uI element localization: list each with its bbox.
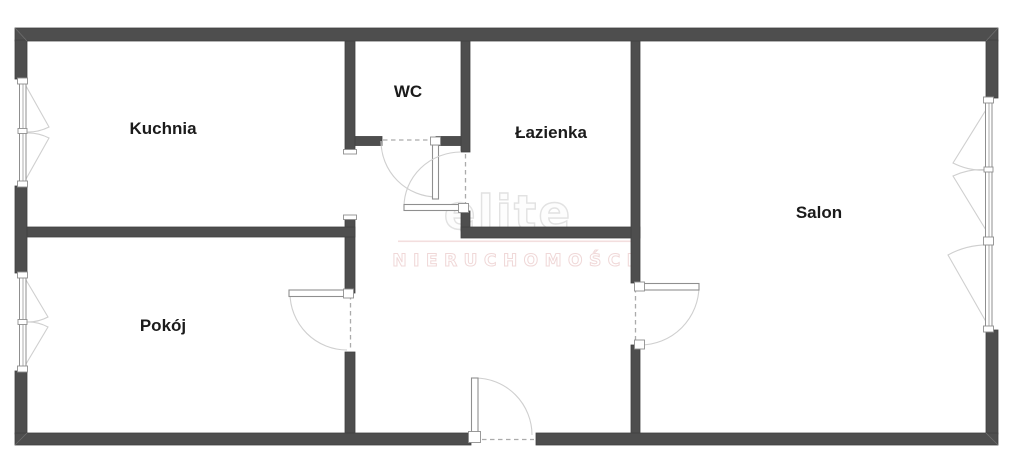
door-wc-leaf xyxy=(433,145,439,199)
kitchen-doorway-jamb-bottom xyxy=(344,215,357,220)
window-salon xyxy=(948,97,994,332)
door-entrance-swing-arc xyxy=(475,378,532,435)
door-wc xyxy=(381,137,441,199)
door-entrance-leaf xyxy=(472,378,479,433)
door-pokoj-swing-arc xyxy=(290,293,347,350)
watermark-subtitle-text: NIERUCHOMOŚCI xyxy=(392,249,639,271)
watermark-divider-line xyxy=(398,241,631,243)
floorplan-canvas: elite NIERUCHOMOŚCI xyxy=(0,0,1024,470)
door-salon-hinge xyxy=(635,282,645,291)
kitchen-doorway-jamb-top xyxy=(344,150,357,155)
window-pokoj xyxy=(18,272,49,372)
door-entrance xyxy=(469,378,535,443)
door-bathroom-hinge xyxy=(459,204,469,213)
door-wc-hinge xyxy=(431,137,441,145)
floorplan-svg: elite NIERUCHOMOŚCI xyxy=(0,0,1024,470)
door-salon-jamb xyxy=(635,340,645,349)
door-salon-leaf xyxy=(640,284,699,291)
door-wc-swing-arc xyxy=(381,141,437,197)
door-entrance-hinge xyxy=(469,432,481,443)
door-bathroom-leaf xyxy=(404,205,460,211)
interior-walls xyxy=(27,41,640,433)
room-label-lazienka: Łazienka xyxy=(515,123,587,142)
door-salon xyxy=(635,282,700,349)
room-label-kuchnia: Kuchnia xyxy=(129,119,197,138)
room-label-wc: WC xyxy=(394,82,422,101)
room-label-salon: Salon xyxy=(796,203,842,222)
window-kuchnia xyxy=(18,78,50,187)
door-salon-swing-arc xyxy=(640,286,699,345)
door-pokoj-hinge xyxy=(344,289,354,298)
room-label-pokoj: Pokój xyxy=(140,316,186,335)
door-pokoj-leaf xyxy=(289,290,346,297)
door-pokoj xyxy=(289,289,354,350)
